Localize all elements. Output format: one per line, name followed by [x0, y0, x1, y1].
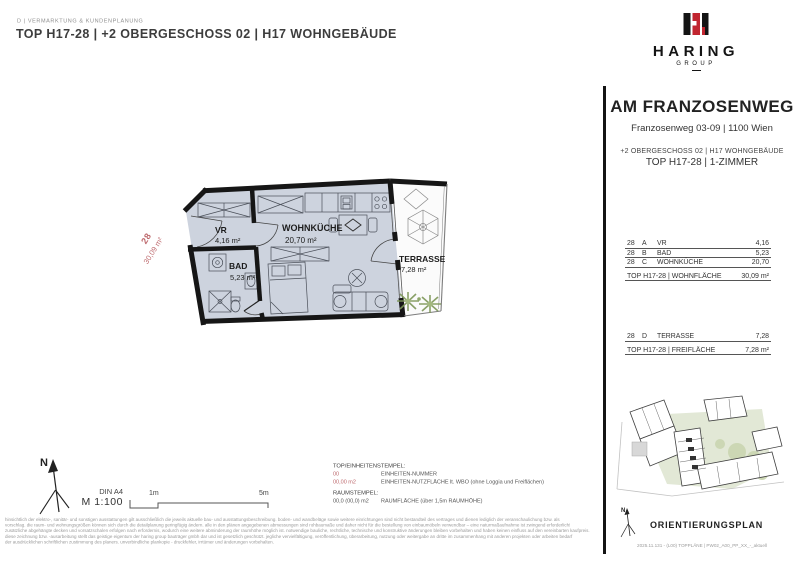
legend-sample: 00,0 (00,0) m2 [333, 498, 381, 505]
haring-logo: HARING GROUP [641, 12, 751, 71]
room-area-bad: 5,23 m² [230, 273, 256, 282]
haring-logo-icon [683, 12, 709, 36]
row-room: VR [657, 240, 741, 247]
project-name: AM FRANZOSENWEG [606, 97, 798, 117]
logo-group-text: GROUP [641, 61, 751, 67]
total-label: TOP H17-28 | WOHNFLÄCHE [627, 273, 722, 280]
row-unit: 28 [627, 250, 642, 257]
plan-file-info: 2025.11.131 - (L00) TOPPLÄNE | PW02_A00_… [606, 543, 798, 548]
legend-row: 00,0 (00,0) m2 RAUMFLÄCHE (über 1,5m RAU… [333, 498, 593, 505]
living-area-total: TOP H17-28 | WOHNFLÄCHE 30,09 m² [625, 272, 771, 282]
orientation-north-arrow-icon: N [616, 504, 640, 540]
table-row: 28 B BAD 5,23 [625, 249, 771, 259]
wall-bad-stub [262, 313, 264, 320]
page-title: TOP H17-28 | +2 OBERGESCHOSS 02 | H17 WO… [16, 27, 397, 41]
project-block: AM FRANZOSENWEG Franzosenweg 03-09 | 110… [606, 97, 798, 168]
scale-label: M 1:100 [63, 496, 123, 508]
row-key: B [642, 250, 657, 257]
wall-vr-wk [252, 188, 254, 223]
row-key: A [642, 240, 657, 247]
outdoor-area-table: 28 D TERRASSE 7,28 TOP H17-28 | FREIFLÄC… [625, 332, 771, 355]
legend-desc: EINHEITEN-NUMMER [381, 471, 437, 478]
row-area: 5,23 [741, 250, 769, 257]
row-area: 20,70 [741, 259, 769, 266]
logo-dash [692, 70, 701, 71]
legend-row: 00,00 m2 EINHEITEN-NUTZFLÄCHE lt. WBO (o… [333, 479, 593, 486]
room-area-vr: 4,16 m² [215, 236, 241, 245]
row-room: WOHNKÜCHE [657, 259, 741, 266]
table-row: 28 C WOHNKÜCHE 20,70 [625, 258, 771, 268]
room-label-wohnkueche: WOHNKÜCHE [282, 223, 343, 233]
row-key: D [642, 333, 657, 340]
disclaimer-line: zusätzliche abgehängte decken und vorsat… [5, 528, 600, 534]
room-label-bad: BAD [229, 261, 247, 271]
row-unit: 28 [627, 240, 642, 247]
room-area-terrasse: 7,28 m² [401, 265, 427, 274]
paper-format: DIN A4 [63, 487, 123, 496]
site-building [704, 396, 747, 421]
legend-desc: RAUMFLÄCHE (über 1,5m RAUMHÖHE) [381, 498, 482, 505]
plan-sheet: D | VERMARKTUNG & KUNDENPLANUNG TOP H17-… [0, 0, 800, 566]
scale-mark-1m: 1m [149, 490, 159, 497]
total-value: 30,09 m² [741, 273, 769, 280]
scale-bar: 1m 5m [128, 484, 278, 512]
wall-vr-bad [188, 248, 256, 250]
unit-stamp: 28 30,09 m² [131, 228, 166, 265]
svg-text:N: N [621, 508, 625, 514]
room-area-wohnkueche: 20,70 m² [285, 236, 317, 245]
row-unit: 28 [627, 333, 642, 340]
row-key: C [642, 259, 657, 266]
living-area-table: 28 A VR 4,16 28 B BAD 5,23 28 C WOHNKÜCH… [625, 239, 771, 281]
orientation-site-plan [612, 394, 792, 506]
wall-right-2 [395, 232, 396, 241]
legend-sample: 00 [333, 471, 381, 478]
legend-sample: 00,00 m2 [333, 479, 381, 486]
table-row: 28 D TERRASSE 7,28 [625, 332, 771, 342]
svg-text:N: N [40, 457, 48, 469]
legend-title: TOP/EINHEITENSTEMPEL: [333, 463, 593, 470]
unit-stamp-number: 28 [139, 231, 153, 246]
north-arrow-icon: N [28, 452, 84, 520]
room-label-terrasse: TERRASSE [399, 254, 446, 264]
apartment-floor [186, 181, 403, 323]
room-label-vr: VR [215, 225, 227, 235]
row-area: 7,28 [741, 333, 769, 340]
disclaimer: hinsichtlich der elektro-, sanitär- und … [5, 517, 600, 545]
wall-right-1 [390, 181, 392, 204]
row-room: BAD [657, 250, 741, 257]
outdoor-area-total: TOP H17-28 | FREIFLÄCHE 7,28 m² [625, 346, 771, 356]
legend-row: 00 EINHEITEN-NUMMER [333, 471, 593, 478]
project-address: Franzosenweg 03-09 | 1100 Wien [606, 123, 798, 134]
total-value: 7,28 m² [745, 347, 769, 354]
table-row: 28 A VR 4,16 [625, 239, 771, 249]
scale-mark-5m: 5m [259, 490, 269, 497]
wall-terrace-top [390, 181, 447, 184]
orientation-title: ORIENTIERUNGSPLAN [650, 520, 763, 530]
department-line: D | VERMARKTUNG & KUNDENPLANUNG [17, 18, 143, 24]
total-label: TOP H17-28 | FREIFLÄCHE [627, 347, 715, 354]
row-area: 4,16 [741, 240, 769, 247]
legend-room-title: RAUMSTEMPEL: [333, 490, 593, 497]
row-unit: 28 [627, 259, 642, 266]
row-room: TERRASSE [657, 333, 741, 340]
logo-brand-text: HARING [641, 43, 751, 60]
legend-desc: EINHEITEN-NUTZFLÄCHE lt. WBO (ohne Loggi… [381, 479, 544, 486]
disclaimer-line: der ausdrücklichen schriftlichen zustimm… [5, 539, 600, 545]
floor-plan: VR 4,16 m² BAD 5,23 m² WOHNKÜCHE 20,70 m… [120, 176, 475, 334]
stamp-legend: TOP/EINHEITENSTEMPEL: 00 EINHEITEN-NUMME… [333, 463, 593, 505]
project-floor-line: +2 OBERGESCHOSS 02 | H17 WOHNGEBÄUDE [606, 148, 798, 155]
project-unit-line: TOP H17-28 | 1-ZIMMER [606, 157, 798, 168]
